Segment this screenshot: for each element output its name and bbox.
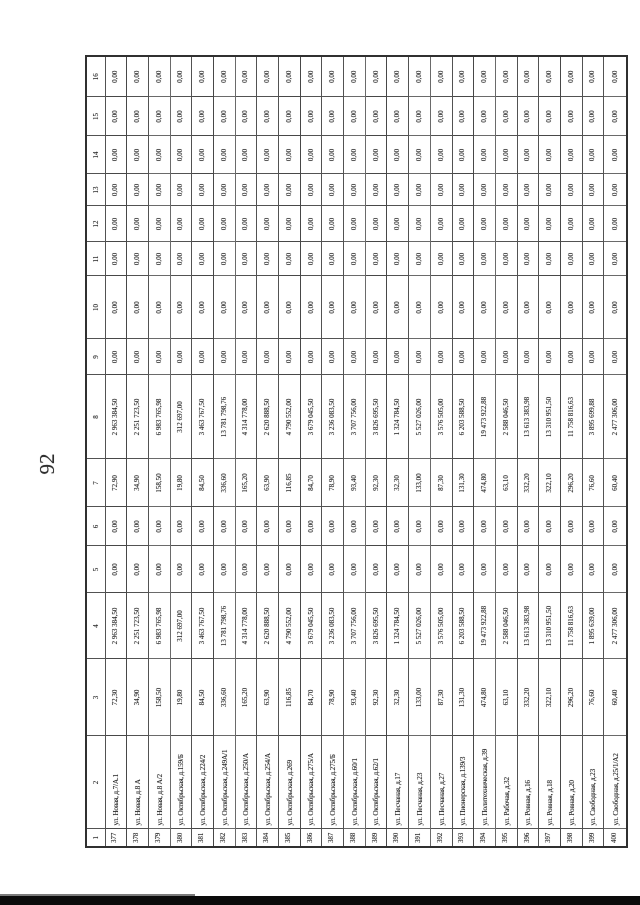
value-cell: 0,00 xyxy=(192,136,214,174)
value-cell: 2 251 723,50 xyxy=(127,593,149,659)
table-row: 394ул. Политехническая, д.39474,8019 473… xyxy=(474,56,496,847)
address-cell: ул. Рабочая, д.32 xyxy=(495,736,517,829)
value-cell: 87,30 xyxy=(430,459,452,507)
value-cell: 0,00 xyxy=(213,56,235,97)
value-cell: 3 236 083,50 xyxy=(322,375,344,459)
value-cell: 0,00 xyxy=(539,56,561,97)
table-row: 400ул. Свободная, д.25/1/А260,402 477 30… xyxy=(604,56,627,847)
value-cell: 0,00 xyxy=(409,97,431,136)
value-cell: 0,00 xyxy=(300,242,322,276)
table-row: 391ул. Песчаная, д.23133,005 527 026,000… xyxy=(409,56,431,847)
value-cell: 72,30 xyxy=(105,659,127,736)
value-cell: 19,80 xyxy=(170,459,192,507)
value-cell: 0,00 xyxy=(257,507,279,546)
value-cell: 11 758 816,63 xyxy=(560,593,582,659)
header-row: 12345678910111213141516 xyxy=(86,56,105,847)
value-cell: 312 697,00 xyxy=(170,375,192,459)
table-body: 377ул. Новая, д.7/А.172,302 963 384,500,… xyxy=(105,56,627,847)
value-cell: 4 314 778,00 xyxy=(235,375,257,459)
value-cell: 2 588 046,50 xyxy=(495,593,517,659)
value-cell: 0,00 xyxy=(452,174,474,206)
value-cell: 0,00 xyxy=(582,174,604,206)
value-cell: 0,00 xyxy=(213,136,235,174)
value-cell: 0,00 xyxy=(495,242,517,276)
value-cell: 0,00 xyxy=(322,339,344,375)
value-cell: 1 895 639,00 xyxy=(582,593,604,659)
value-cell: 0,00 xyxy=(148,97,170,136)
value-cell: 1 324 784,50 xyxy=(387,593,409,659)
value-cell: 0,00 xyxy=(560,97,582,136)
value-cell: 0,00 xyxy=(235,339,257,375)
value-cell: 4 790 552,00 xyxy=(279,375,301,459)
value-cell: 312 697,00 xyxy=(170,593,192,659)
value-cell: 116,85 xyxy=(279,459,301,507)
value-cell: 72,90 xyxy=(105,459,127,507)
column-header: 12 xyxy=(86,206,105,242)
value-cell: 0,00 xyxy=(560,136,582,174)
row-number-cell: 389 xyxy=(365,829,387,847)
value-cell: 0,00 xyxy=(539,339,561,375)
value-cell: 0,00 xyxy=(495,136,517,174)
value-cell: 0,00 xyxy=(213,206,235,242)
row-number-cell: 383 xyxy=(235,829,257,847)
value-cell: 165,20 xyxy=(235,459,257,507)
value-cell: 0,00 xyxy=(170,97,192,136)
row-number-cell: 385 xyxy=(279,829,301,847)
value-cell: 2 477 306,00 xyxy=(604,593,627,659)
row-number-cell: 386 xyxy=(300,829,322,847)
value-cell: 0,00 xyxy=(235,507,257,546)
value-cell: 0,00 xyxy=(344,276,366,339)
value-cell: 0,00 xyxy=(430,507,452,546)
column-header: 16 xyxy=(86,56,105,97)
value-cell: 0,00 xyxy=(235,97,257,136)
value-cell: 0,00 xyxy=(517,507,539,546)
value-cell: 0,00 xyxy=(539,242,561,276)
value-cell: 2 251 723,50 xyxy=(127,375,149,459)
value-cell: 0,00 xyxy=(300,97,322,136)
column-header: 9 xyxy=(86,339,105,375)
value-cell: 116,85 xyxy=(279,659,301,736)
value-cell: 34,90 xyxy=(127,659,149,736)
value-cell: 296,20 xyxy=(560,459,582,507)
value-cell: 0,00 xyxy=(235,206,257,242)
value-cell: 0,00 xyxy=(365,97,387,136)
value-cell: 0,00 xyxy=(452,242,474,276)
value-cell: 0,00 xyxy=(495,97,517,136)
value-cell: 0,00 xyxy=(213,97,235,136)
value-cell: 13 613 383,98 xyxy=(517,593,539,659)
value-cell: 0,00 xyxy=(127,242,149,276)
value-cell: 0,00 xyxy=(430,206,452,242)
value-cell: 3 826 695,50 xyxy=(365,593,387,659)
value-cell: 0,00 xyxy=(560,56,582,97)
value-cell: 0,00 xyxy=(127,56,149,97)
value-cell: 78,90 xyxy=(322,459,344,507)
column-header: 10 xyxy=(86,276,105,339)
value-cell: 131,30 xyxy=(452,659,474,736)
value-cell: 0,00 xyxy=(409,546,431,593)
value-cell: 0,00 xyxy=(105,97,127,136)
value-cell: 0,00 xyxy=(148,174,170,206)
value-cell: 0,00 xyxy=(387,206,409,242)
address-cell: ул. Свободная, д.23 xyxy=(582,736,604,829)
row-number-cell: 396 xyxy=(517,829,539,847)
value-cell: 6 203 588,50 xyxy=(452,593,474,659)
value-cell: 6 983 765,98 xyxy=(148,375,170,459)
column-header: 6 xyxy=(86,507,105,546)
value-cell: 3 463 767,50 xyxy=(192,593,214,659)
value-cell: 0,00 xyxy=(409,56,431,97)
value-cell: 0,00 xyxy=(387,56,409,97)
column-header: 13 xyxy=(86,174,105,206)
value-cell: 0,00 xyxy=(257,136,279,174)
value-cell: 0,00 xyxy=(279,339,301,375)
value-cell: 0,00 xyxy=(409,276,431,339)
value-cell: 0,00 xyxy=(192,242,214,276)
row-number-cell: 399 xyxy=(582,829,604,847)
value-cell: 84,70 xyxy=(300,459,322,507)
value-cell: 165,20 xyxy=(235,659,257,736)
value-cell: 322,10 xyxy=(539,459,561,507)
value-cell: 0,00 xyxy=(452,56,474,97)
value-cell: 2 620 888,50 xyxy=(257,375,279,459)
value-cell: 0,00 xyxy=(452,339,474,375)
value-cell: 19 473 922,88 xyxy=(474,375,496,459)
value-cell: 5 527 026,00 xyxy=(409,375,431,459)
value-cell: 0,00 xyxy=(300,546,322,593)
data-table: 12345678910111213141516 377ул. Новая, д.… xyxy=(85,55,628,848)
value-cell: 0,00 xyxy=(257,206,279,242)
value-cell: 92,30 xyxy=(365,659,387,736)
value-cell: 0,00 xyxy=(517,136,539,174)
value-cell: 0,00 xyxy=(365,546,387,593)
value-cell: 0,00 xyxy=(430,136,452,174)
value-cell: 0,00 xyxy=(582,339,604,375)
value-cell: 6 983 765,98 xyxy=(148,593,170,659)
value-cell: 0,00 xyxy=(105,136,127,174)
value-cell: 3 679 045,50 xyxy=(300,375,322,459)
address-cell: ул. Пионерская, д.139/3 xyxy=(452,736,474,829)
row-number-cell: 378 xyxy=(127,829,149,847)
value-cell: 0,00 xyxy=(127,507,149,546)
address-cell: ул. Песчаная, д.17 xyxy=(387,736,409,829)
value-cell: 474,80 xyxy=(474,459,496,507)
table-row: 397ул. Ровная, д.18322,1013 310 951,500,… xyxy=(539,56,561,847)
value-cell: 0,00 xyxy=(387,546,409,593)
value-cell: 3 236 083,50 xyxy=(322,593,344,659)
value-cell: 0,00 xyxy=(127,276,149,339)
value-cell: 0,00 xyxy=(539,97,561,136)
address-cell: ул. Октябрьская, д.275/А xyxy=(300,736,322,829)
value-cell: 0,00 xyxy=(148,339,170,375)
value-cell: 0,00 xyxy=(560,546,582,593)
value-cell: 133,00 xyxy=(409,459,431,507)
table-row: 385ул. Октябрьская, д.269116,854 790 552… xyxy=(279,56,301,847)
value-cell: 0,00 xyxy=(192,546,214,593)
value-cell: 0,00 xyxy=(322,276,344,339)
value-cell: 0,00 xyxy=(213,242,235,276)
value-cell: 3 463 767,50 xyxy=(192,375,214,459)
row-number-cell: 377 xyxy=(105,829,127,847)
value-cell: 0,00 xyxy=(322,56,344,97)
value-cell: 0,00 xyxy=(257,546,279,593)
value-cell: 0,00 xyxy=(387,242,409,276)
column-header: 7 xyxy=(86,459,105,507)
value-cell: 0,00 xyxy=(495,174,517,206)
value-cell: 0,00 xyxy=(604,339,627,375)
value-cell: 0,00 xyxy=(365,174,387,206)
value-cell: 0,00 xyxy=(539,276,561,339)
value-cell: 0,00 xyxy=(235,546,257,593)
value-cell: 2 477 306,00 xyxy=(604,375,627,459)
value-cell: 0,00 xyxy=(279,97,301,136)
value-cell: 0,00 xyxy=(474,507,496,546)
address-cell: ул. Октябрьская, д.269 xyxy=(279,736,301,829)
value-cell: 0,00 xyxy=(474,136,496,174)
value-cell: 133,00 xyxy=(409,659,431,736)
value-cell: 0,00 xyxy=(495,206,517,242)
value-cell: 0,00 xyxy=(409,507,431,546)
address-cell: ул. Песчаная, д.27 xyxy=(430,736,452,829)
value-cell: 0,00 xyxy=(279,136,301,174)
value-cell: 0,00 xyxy=(387,339,409,375)
value-cell: 0,00 xyxy=(127,546,149,593)
value-cell: 0,00 xyxy=(604,97,627,136)
value-cell: 0,00 xyxy=(322,507,344,546)
row-number-cell: 391 xyxy=(409,829,431,847)
value-cell: 336,60 xyxy=(213,659,235,736)
value-cell: 0,00 xyxy=(170,206,192,242)
value-cell: 0,00 xyxy=(474,174,496,206)
value-cell: 0,00 xyxy=(604,56,627,97)
value-cell: 0,00 xyxy=(279,276,301,339)
value-cell: 0,00 xyxy=(495,507,517,546)
value-cell: 0,00 xyxy=(539,546,561,593)
value-cell: 0,00 xyxy=(560,276,582,339)
value-cell: 0,00 xyxy=(344,97,366,136)
value-cell: 0,00 xyxy=(409,136,431,174)
value-cell: 0,00 xyxy=(474,339,496,375)
value-cell: 3 576 505,00 xyxy=(430,375,452,459)
address-cell: ул. Песчаная, д.23 xyxy=(409,736,431,829)
value-cell: 0,00 xyxy=(257,276,279,339)
column-header: 2 xyxy=(86,736,105,829)
value-cell: 0,00 xyxy=(409,206,431,242)
value-cell: 0,00 xyxy=(539,174,561,206)
address-cell: ул. Ровная, д.16 xyxy=(517,736,539,829)
table-row: 384ул. Октябрьская, д.254/А63,902 620 88… xyxy=(257,56,279,847)
value-cell: 0,00 xyxy=(344,56,366,97)
row-number-cell: 395 xyxy=(495,829,517,847)
address-cell: ул. Октябрьская, д.60/1 xyxy=(344,736,366,829)
value-cell: 34,90 xyxy=(127,459,149,507)
value-cell: 322,10 xyxy=(539,659,561,736)
value-cell: 0,00 xyxy=(474,56,496,97)
value-cell: 11 758 816,63 xyxy=(560,375,582,459)
row-number-cell: 394 xyxy=(474,829,496,847)
value-cell: 0,00 xyxy=(604,546,627,593)
value-cell: 0,00 xyxy=(604,242,627,276)
value-cell: 0,00 xyxy=(365,339,387,375)
value-cell: 0,00 xyxy=(452,276,474,339)
value-cell: 93,40 xyxy=(344,659,366,736)
value-cell: 0,00 xyxy=(430,546,452,593)
value-cell: 0,00 xyxy=(257,97,279,136)
value-cell: 0,00 xyxy=(409,242,431,276)
value-cell: 0,00 xyxy=(148,276,170,339)
column-header: 3 xyxy=(86,659,105,736)
value-cell: 84,50 xyxy=(192,659,214,736)
table-row: 378ул. Новая, д.8 А34,902 251 723,500,00… xyxy=(127,56,149,847)
value-cell: 63,10 xyxy=(495,459,517,507)
value-cell: 0,00 xyxy=(148,136,170,174)
address-cell: ул. Октябрьская, д.250/А xyxy=(235,736,257,829)
value-cell: 0,00 xyxy=(127,174,149,206)
value-cell: 0,00 xyxy=(430,339,452,375)
value-cell: 0,00 xyxy=(582,136,604,174)
value-cell: 0,00 xyxy=(170,507,192,546)
value-cell: 0,00 xyxy=(539,136,561,174)
value-cell: 0,00 xyxy=(387,276,409,339)
value-cell: 0,00 xyxy=(365,206,387,242)
value-cell: 0,00 xyxy=(192,56,214,97)
value-cell: 0,00 xyxy=(452,136,474,174)
scan-edge-artifact xyxy=(0,896,640,905)
table-row: 377ул. Новая, д.7/А.172,302 963 384,500,… xyxy=(105,56,127,847)
table-row: 388ул. Октябрьская, д.60/193,403 707 756… xyxy=(344,56,366,847)
table-row: 389ул. Октябрьская, д.62/192,303 826 695… xyxy=(365,56,387,847)
value-cell: 3 826 695,50 xyxy=(365,375,387,459)
value-cell: 2 620 888,50 xyxy=(257,593,279,659)
value-cell: 0,00 xyxy=(582,507,604,546)
table-row: 393ул. Пионерская, д.139/3131,306 203 58… xyxy=(452,56,474,847)
value-cell: 0,00 xyxy=(279,206,301,242)
table-row: 390ул. Песчаная, д.1732,301 324 784,500,… xyxy=(387,56,409,847)
value-cell: 0,00 xyxy=(387,174,409,206)
value-cell: 0,00 xyxy=(127,339,149,375)
table-row: 380ул. Октябрьская, д.159/Б19,80312 697,… xyxy=(170,56,192,847)
value-cell: 0,00 xyxy=(279,242,301,276)
value-cell: 0,00 xyxy=(127,97,149,136)
value-cell: 0,00 xyxy=(322,206,344,242)
value-cell: 131,30 xyxy=(452,459,474,507)
value-cell: 0,00 xyxy=(517,206,539,242)
address-cell: ул. Ровная, д.20 xyxy=(560,736,582,829)
value-cell: 13 781 798,76 xyxy=(213,593,235,659)
value-cell: 63,10 xyxy=(495,659,517,736)
value-cell: 0,00 xyxy=(279,174,301,206)
value-cell: 0,00 xyxy=(344,546,366,593)
value-cell: 0,00 xyxy=(213,174,235,206)
value-cell: 0,00 xyxy=(517,276,539,339)
value-cell: 78,90 xyxy=(322,659,344,736)
value-cell: 0,00 xyxy=(105,242,127,276)
value-cell: 19,80 xyxy=(170,659,192,736)
value-cell: 0,00 xyxy=(300,339,322,375)
value-cell: 0,00 xyxy=(560,507,582,546)
value-cell: 0,00 xyxy=(365,276,387,339)
table-row: 379ул. Новая, д.8 А/2158,506 983 765,980… xyxy=(148,56,170,847)
value-cell: 5 527 026,00 xyxy=(409,593,431,659)
column-header: 8 xyxy=(86,375,105,459)
value-cell: 0,00 xyxy=(192,276,214,339)
value-cell: 158,50 xyxy=(148,459,170,507)
value-cell: 0,00 xyxy=(517,56,539,97)
value-cell: 0,00 xyxy=(344,242,366,276)
value-cell: 0,00 xyxy=(452,507,474,546)
row-number-cell: 381 xyxy=(192,829,214,847)
value-cell: 0,00 xyxy=(170,242,192,276)
value-cell: 3 707 756,00 xyxy=(344,593,366,659)
value-cell: 4 790 552,00 xyxy=(279,593,301,659)
value-cell: 0,00 xyxy=(474,242,496,276)
value-cell: 0,00 xyxy=(582,242,604,276)
value-cell: 0,00 xyxy=(300,276,322,339)
value-cell: 0,00 xyxy=(452,206,474,242)
value-cell: 13 310 951,50 xyxy=(539,593,561,659)
row-number-cell: 384 xyxy=(257,829,279,847)
column-header: 14 xyxy=(86,136,105,174)
row-number-cell: 392 xyxy=(430,829,452,847)
row-number-cell: 397 xyxy=(539,829,561,847)
value-cell: 0,00 xyxy=(495,339,517,375)
table-row: 387ул. Октябрьская, д.275/Б78,903 236 08… xyxy=(322,56,344,847)
value-cell: 3 576 505,00 xyxy=(430,593,452,659)
scanned-document-page: 92 12345678910111213141516 377ул. Новая,… xyxy=(0,0,640,905)
value-cell: 0,00 xyxy=(148,546,170,593)
value-cell: 0,00 xyxy=(322,546,344,593)
row-number-cell: 400 xyxy=(604,829,627,847)
value-cell: 0,00 xyxy=(560,174,582,206)
value-cell: 0,00 xyxy=(560,339,582,375)
value-cell: 0,00 xyxy=(365,242,387,276)
value-cell: 93,40 xyxy=(344,459,366,507)
value-cell: 0,00 xyxy=(430,56,452,97)
column-header: 1 xyxy=(86,829,105,847)
value-cell: 0,00 xyxy=(539,206,561,242)
address-cell: ул. Октябрьская, д.62/1 xyxy=(365,736,387,829)
table-row: 383ул. Октябрьская, д.250/А165,204 314 7… xyxy=(235,56,257,847)
value-cell: 0,00 xyxy=(170,546,192,593)
value-cell: 0,00 xyxy=(235,242,257,276)
value-cell: 0,00 xyxy=(279,56,301,97)
value-cell: 0,00 xyxy=(474,546,496,593)
table-row: 398ул. Ровная, д.20296,2011 758 816,630,… xyxy=(560,56,582,847)
address-cell: ул. Октябрьская, д.254/А xyxy=(257,736,279,829)
value-cell: 0,00 xyxy=(300,136,322,174)
value-cell: 0,00 xyxy=(344,174,366,206)
table-row: 396ул. Ровная, д.16332,2013 613 383,980,… xyxy=(517,56,539,847)
value-cell: 0,00 xyxy=(105,174,127,206)
column-header: 11 xyxy=(86,242,105,276)
value-cell: 0,00 xyxy=(604,507,627,546)
value-cell: 0,00 xyxy=(452,546,474,593)
address-cell: ул. Новая, д.8 А xyxy=(127,736,149,829)
row-number-cell: 387 xyxy=(322,829,344,847)
value-cell: 0,00 xyxy=(105,276,127,339)
value-cell: 0,00 xyxy=(344,206,366,242)
address-cell: ул. Ровная, д.18 xyxy=(539,736,561,829)
value-cell: 0,00 xyxy=(105,546,127,593)
value-cell: 0,00 xyxy=(279,546,301,593)
column-header: 4 xyxy=(86,593,105,659)
value-cell: 0,00 xyxy=(170,136,192,174)
row-number-cell: 380 xyxy=(170,829,192,847)
value-cell: 0,00 xyxy=(582,56,604,97)
value-cell: 0,00 xyxy=(430,276,452,339)
value-cell: 0,00 xyxy=(105,507,127,546)
